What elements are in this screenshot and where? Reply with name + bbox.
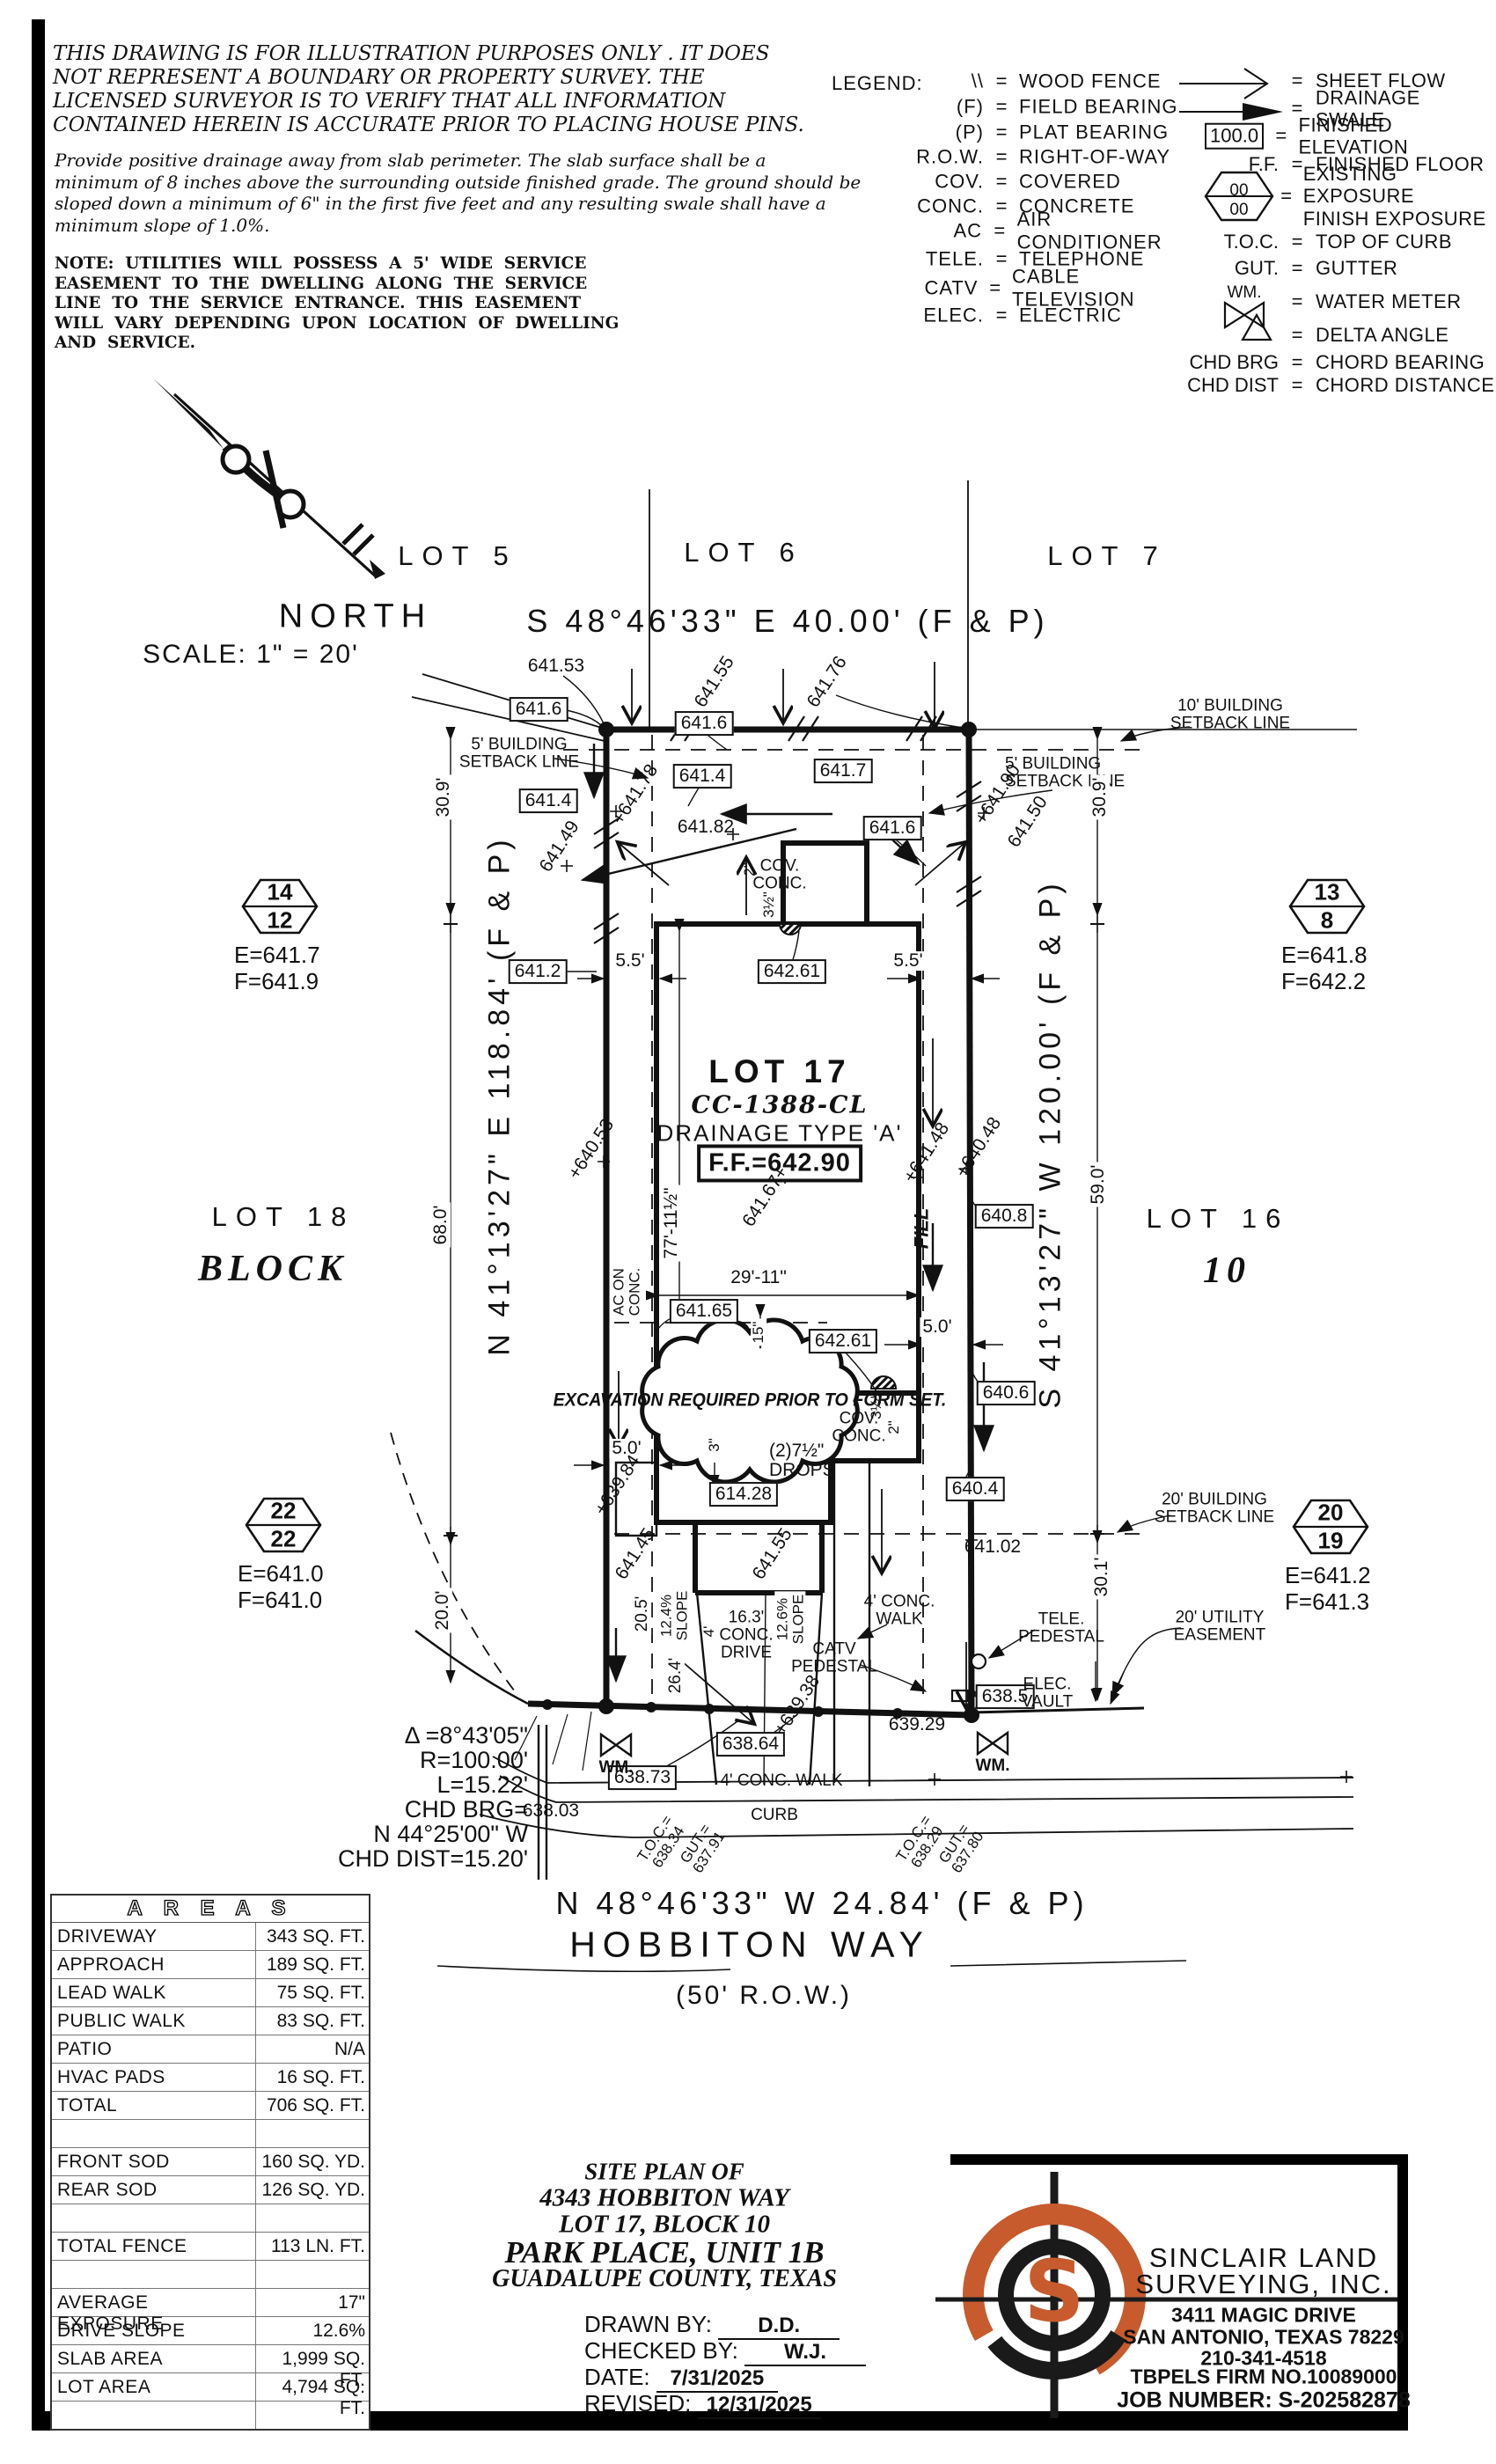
utility-line: WILL VARY DEPENDING UPON LOCATION OF DWE… (55, 313, 619, 334)
curve-data-line: R=100.00' (264, 1748, 528, 1772)
area-value: 126 SQ. YD. (256, 2176, 369, 2204)
legend-symbol: ELEC. (832, 304, 984, 327)
curve-data-line: L=15.22' (264, 1772, 528, 1797)
legend-hex-bottom-value: 00 (1229, 201, 1248, 220)
utility-line: LINE TO THE SERVICE ENTRANCE. THIS EASEM… (55, 293, 619, 313)
company-address-1: 3411 MAGIC DRIVE (1171, 2304, 1356, 2328)
plan-label: T.O.C.= 638.29 (893, 1813, 947, 1873)
area-label: APPROACH (52, 1951, 256, 1978)
legend-description: CHORD BEARING (1316, 351, 1485, 373)
legend-row: GUT. = GUTTER (1175, 257, 1495, 280)
plan-label: 641.82 (678, 818, 734, 837)
drainage-line: sloped down a minimum of 6" in the first… (55, 193, 861, 215)
plan-label: CURB (751, 1807, 798, 1824)
plan-label: 638.64 (716, 1732, 785, 1756)
plan-label: 5' BUILDING SETBACK LINE (459, 736, 579, 771)
legend-equals: = (1279, 374, 1316, 397)
lot6-label: LOT 6 (684, 537, 803, 568)
legend-row: (F) = FIELD BEARING (832, 96, 1201, 119)
titleblock-right-rule (1397, 2154, 1408, 2418)
plan-label: 3½" (761, 891, 777, 918)
north-arrow (153, 378, 385, 579)
finish-elevation: F=641.0 (238, 1587, 322, 1613)
curve-data-line: CHD BRG= (264, 1797, 528, 1822)
plan-label: 30.9' (1090, 775, 1110, 820)
utility-line: NOTE: UTILITIES WILL POSSESS A 5' WIDE S… (55, 253, 619, 274)
lot17-title: LOT 17 (708, 1053, 850, 1090)
areas-table-row: HVAC PADS 16 SQ. FT. (52, 2064, 369, 2092)
areas-table-row: REAR SOD 126 SQ. YD. (52, 2176, 369, 2204)
bearing-north: S 48°46'33" E 40.00' (F & P) (526, 603, 1048, 640)
legend-row: T.O.C. = TOP OF CURB (1175, 231, 1495, 253)
bearing-east: S 41°13'27" W 120.00' (F & P) (1034, 879, 1068, 1408)
area-value: N/A (256, 2035, 369, 2063)
legend-row: = EXISTING EXPOSURE FINISH EXPOSURE (1175, 163, 1495, 230)
curve-data-line: Δ =8°43'05" (264, 1723, 528, 1748)
disclaimer-line: LICENSED SURVEYOR IS TO VERIFY THAT ALL … (53, 90, 804, 114)
elec-vault-symbol (952, 1690, 968, 1701)
area-value: 83 SQ. FT. (256, 2007, 369, 2035)
legend-description: DELTA ANGLE (1316, 324, 1448, 346)
area-label: DRIVE SLOPE (52, 2317, 256, 2344)
plan-label: 20.0' (433, 1588, 452, 1633)
plan-label: 640.8 (975, 1204, 1034, 1228)
field-label: DATE: (584, 2364, 650, 2390)
plan-label: 641.4 (673, 764, 732, 788)
plan-label: +640.53 (565, 1116, 618, 1183)
area-label: FRONT SOD (52, 2148, 256, 2175)
field-value: 7/31/2025 (656, 2366, 778, 2393)
bearing-south: N 48°46'33" W 24.84' (F & P) (555, 1885, 1088, 1922)
area-value: 706 SQ. FT. (256, 2092, 369, 2119)
street-name: HOBBITON WAY (569, 1925, 930, 1966)
disclaimer-line: CONTAINED HEREIN IS ACCURATE PRIOR TO PL… (53, 114, 804, 137)
areas-table-row: TOTAL FENCE 113 LN. FT. (52, 2233, 369, 2261)
areas-table-row: FRONT SOD 160 SQ. YD. (52, 2148, 369, 2176)
job-number: JOB NUMBER: S-202582878 (1117, 2388, 1410, 2414)
area-label: LOT AREA (52, 2373, 256, 2401)
title-line: SITE PLAN OF (584, 2159, 744, 2186)
legend-description: FINISHED ELEVATION (1299, 114, 1496, 159)
plan-label: 5.5' (612, 951, 647, 971)
plan-label: 30.1' (1092, 1555, 1111, 1600)
legend-equals: = (1270, 185, 1303, 208)
area-label: HVAC PADS (52, 2064, 256, 2091)
field-value: W.J. (744, 2340, 866, 2366)
plan-code: CC-1388-CL (691, 1092, 868, 1119)
legend-description: ELECTRIC (1019, 304, 1122, 327)
area-value: 17" (256, 2289, 369, 2316)
plan-label: WM. (975, 1757, 1009, 1775)
legend-description: PLAT BEARING (1019, 121, 1169, 144)
area-label: REAR SOD (52, 2176, 256, 2204)
legend-wm-label: WM. (1227, 283, 1261, 303)
legend-symbol: CATV (832, 276, 978, 299)
legend-description: EXISTING EXPOSURE FINISH EXPOSURE (1303, 163, 1495, 230)
existing-elevation: E=641.8 (1281, 942, 1368, 968)
legend-row: COV. = COVERED (832, 171, 1201, 194)
logo-letter: S (1023, 2242, 1084, 2341)
legend-description: COVERED (1019, 171, 1121, 194)
title-field: REVISED: 12/31/2025 (584, 2390, 821, 2419)
area-value: 160 SQ. YD. (256, 2148, 369, 2175)
utility-line: AND SERVICE. (55, 333, 619, 353)
areas-table-row: LOT AREA 4,794 SQ. FT. (52, 2373, 369, 2402)
plan-label: 641.55 (749, 1525, 796, 1583)
plan-label: 5.5' (891, 951, 925, 971)
site-plan-page: THIS DRAWING IS FOR ILLUSTRATION PURPOSE… (0, 0, 1496, 2464)
title-field: CHECKED BY: W.J. (584, 2337, 866, 2366)
legend-equals: = (978, 276, 1011, 299)
disclaimer-note: THIS DRAWING IS FOR ILLUSTRATION PURPOSE… (53, 42, 804, 137)
plan-label: 614.28 (709, 1482, 778, 1507)
plan-label: +641.48 (900, 1119, 953, 1186)
plan-label: 77'-11½" (662, 1184, 681, 1261)
lot7-label: LOT 7 (1047, 540, 1167, 572)
area-label (52, 2402, 256, 2429)
legend-symbol: R.O.W. (832, 146, 984, 169)
legend-row: 100.0 = FINISHED ELEVATION (1175, 114, 1495, 159)
plan-label: 4' CONC. WALK (864, 1593, 935, 1628)
tele-pedestal-symbol (972, 1654, 986, 1668)
plan-label: AC ON CONC. (611, 1265, 642, 1319)
area-label: AVERAGE EXPOSURE (52, 2289, 256, 2316)
legend-equals: = (1279, 324, 1316, 347)
legend-symbol: 100.0 (1205, 123, 1264, 150)
plan-label: 2" (742, 862, 758, 876)
plan-label: 642.61 (758, 959, 826, 984)
legend-row: AC = AIR CONDITIONER (832, 208, 1201, 253)
areas-table: A R E A S DRIVEWAY 343 SQ. FT. APPROACH … (50, 1894, 370, 2431)
title-line: GUADALUPE COUNTY, TEXAS (492, 2265, 837, 2293)
legend-description: RIGHT-OF-WAY (1019, 146, 1170, 169)
plan-label: 16.3' CONC. DRIVE (719, 1609, 773, 1661)
existing-exposure-value: 22 (271, 1498, 297, 1525)
plan-label: 30.9' (434, 775, 453, 820)
areas-table-header: A R E A S (52, 1896, 369, 1923)
finish-elevation: F=641.9 (234, 968, 319, 994)
plan-label: 641.45 (612, 1525, 658, 1583)
plan-label: 641.49 (536, 818, 583, 876)
area-label: LEAD WALK (52, 1979, 256, 2006)
plan-label: 20' BUILDING SETBACK LINE (1155, 1491, 1274, 1526)
field-value: 12/31/2025 (698, 2393, 821, 2419)
existing-exposure-value: 20 (1318, 1500, 1344, 1527)
legend-row: = DELTA ANGLE (1175, 324, 1495, 347)
finish-elevation: F=642.2 (1281, 968, 1366, 994)
legend-row: R.O.W. = RIGHT-OF-WAY (832, 146, 1201, 169)
legend-description: TOP OF CURB (1316, 231, 1452, 253)
areas-table-rows: DRIVEWAY 343 SQ. FT. APPROACH 189 SQ. FT… (52, 1923, 369, 2429)
legend-symbol: (F) (832, 96, 984, 119)
area-value: 12.6% (256, 2317, 369, 2344)
area-label: PATIO (52, 2035, 256, 2063)
legend-description: WATER METER (1316, 290, 1462, 312)
area-label: DRIVEWAY (52, 1923, 256, 1950)
plan-label: 639.29 (889, 1715, 945, 1734)
plan-label: (2)7½" DROPS (769, 1441, 835, 1480)
curve-data-line: CHD DIST=15.20' (264, 1846, 528, 1871)
north-label: NORTH (279, 598, 432, 636)
plan-label: 640.6 (977, 1381, 1036, 1405)
plan-label: 10' BUILDING SETBACK LINE (1170, 697, 1290, 732)
finish-exposure-value: 22 (271, 1526, 297, 1553)
plan-label: 12.4% SLOPE (658, 1588, 689, 1644)
areas-table-row (52, 2261, 369, 2289)
plan-label: 29'-11" (728, 1268, 789, 1287)
plan-label: WM. (598, 1759, 633, 1777)
drainage-type: DRAINAGE TYPE 'A' (657, 1120, 903, 1148)
areas-table-row: PUBLIC WALK 83 SQ. FT. (52, 2007, 369, 2035)
drainage-line: Provide positive drainage away from slab… (55, 150, 861, 172)
legend-description: CHORD DISTANCE (1316, 374, 1494, 396)
legend-symbol: AC (832, 219, 982, 242)
drainage-line: minimum slope of 1.0%. (55, 215, 861, 237)
dashed-curve (391, 1433, 515, 1691)
plan-label: 641.02 (964, 1537, 1021, 1557)
legend-equals: = (1279, 351, 1316, 374)
areas-table-row: AVERAGE EXPOSURE 17" (52, 2289, 369, 2317)
legend-symbol: \\ (832, 70, 984, 93)
plan-label: TELE. PEDESTAL (1018, 1610, 1104, 1646)
areas-table-row (52, 2120, 369, 2148)
plan-label: +639.38 (771, 1672, 824, 1739)
plan-label: 2" (886, 1420, 902, 1434)
plan-label: 12.6% SLOPE (774, 1592, 805, 1647)
drainage-line: minimum of 8 inches above the surroundin… (55, 172, 861, 194)
legend-row: ELEC. = ELECTRIC (832, 304, 1201, 327)
area-label: SLAB AREA (52, 2345, 256, 2372)
existing-exposure-value: 13 (1315, 879, 1340, 906)
area-label (52, 2204, 256, 2232)
areas-table-row: APPROACH 189 SQ. FT. (52, 1951, 369, 1979)
area-label: TOTAL FENCE (52, 2233, 256, 2260)
area-value: 4,794 SQ. FT. (256, 2373, 369, 2401)
field-label: REVISED: (584, 2390, 691, 2416)
areas-table-row: DRIVEWAY 343 SQ. FT. (52, 1923, 369, 1951)
plan-label: 4' (701, 1626, 717, 1638)
area-label (52, 2261, 256, 2288)
lot18-label: LOT 18 (212, 1201, 356, 1233)
fence-ticks (594, 716, 981, 943)
areas-table-row: DRIVE SLOPE 12.6% (52, 2317, 369, 2345)
street-row: (50' R.O.W.) (676, 1981, 852, 2011)
utility-note: NOTE: UTILITIES WILL POSSESS A 5' WIDE S… (55, 253, 636, 353)
house-outline (656, 843, 919, 1593)
block-number-right: 10 (1203, 1250, 1250, 1292)
legend-description: WOOD FENCE (1019, 70, 1162, 93)
field-label: CHECKED BY: (584, 2337, 738, 2364)
plan-label: 641.2 (509, 959, 568, 984)
boundary-south (528, 1704, 972, 1715)
plan-label: 26.4' (667, 1655, 685, 1697)
plan-label: 641.4 (519, 788, 578, 813)
plan-label: ELEC. VAULT (1022, 1676, 1073, 1711)
area-value: 16 SQ. FT. (256, 2064, 369, 2091)
legend-equals: = (1279, 290, 1316, 313)
legend-symbol: (P) (832, 121, 984, 144)
area-label (52, 2120, 256, 2147)
existing-elevation: E=641.7 (234, 942, 320, 968)
scale-label: SCALE: 1" = 20' (143, 640, 359, 670)
areas-table-row: TOTAL 706 SQ. FT. (52, 2092, 369, 2120)
plan-label: +640.48 (952, 1114, 1005, 1181)
plan-label: 5.0' (920, 1317, 954, 1337)
finish-elevation: F=641.3 (1285, 1588, 1369, 1615)
plan-label: 68.0' (431, 1203, 451, 1248)
utility-line: EASEMENT TO THE DWELLING ALONG THE SERVI… (55, 274, 619, 294)
plan-label: 641.55 (691, 653, 737, 711)
plan-label: FILL (913, 1208, 933, 1249)
plan-label: 640.4 (946, 1477, 1005, 1501)
plan-label: +641.78 (609, 761, 662, 828)
plan-label: 4' CONC. WALK (720, 1772, 842, 1790)
area-value: 1,999 SQ. FT. (256, 2345, 369, 2372)
existing-exposure-value: 14 (268, 879, 293, 906)
legend-symbol: GUT. (1175, 257, 1279, 280)
area-value: 75 SQ. FT. (256, 1979, 369, 2006)
company-address-2: SAN ANTONIO, TEXAS 78229 (1123, 2326, 1404, 2350)
legend-row: \\ = WOOD FENCE (832, 70, 1201, 93)
areas-table-row: SLAB AREA 1,999 SQ. FT. (52, 2345, 369, 2373)
plan-label: 641.6 (863, 816, 922, 840)
legend-row: CHD DIST = CHORD DISTANCE (1175, 374, 1495, 397)
block-label-left: BLOCK (198, 1248, 348, 1290)
legend-symbol: T.O.C. (1175, 231, 1279, 253)
plan-label: 641.7 (814, 759, 873, 783)
areas-table-row: LEAD WALK 75 SQ. FT. (52, 1979, 369, 2007)
legend-equals: = (1279, 231, 1316, 253)
row-curve (415, 1631, 528, 1704)
field-label: DRAWN BY: (584, 2311, 712, 2337)
legend-equals: = (1264, 125, 1298, 148)
page-border-left (32, 19, 45, 2431)
adjacent-lot-lines (412, 674, 605, 741)
area-label: PUBLIC WALK (52, 2007, 256, 2035)
plan-label: 638.03 (523, 1801, 579, 1821)
bearing-west: N 41°13'27" E 118.84' (F & P) (483, 835, 517, 1355)
areas-table-row: PATIO N/A (52, 2035, 369, 2064)
area-value: 189 SQ. FT. (256, 1951, 369, 1978)
plan-label: 59.0' (1089, 1162, 1108, 1207)
finish-exposure-value: 19 (1318, 1528, 1344, 1555)
plan-label: COV. CONC. (752, 857, 806, 892)
legend-equals: = (1279, 257, 1316, 280)
title-line: 4343 HOBBITON WAY (539, 2184, 789, 2213)
area-value: 343 SQ. FT. (256, 1923, 369, 1950)
titleblock-top-rule (950, 2154, 1408, 2165)
plan-label: 642.61 (809, 1329, 877, 1353)
legend-symbol: COV. (832, 171, 984, 194)
legend-description: GUTTER (1316, 257, 1397, 279)
title-field: DATE: 7/31/2025 (584, 2364, 778, 2393)
legend-row: = WATER METER (1175, 290, 1495, 313)
plan-label: 15" (751, 1319, 766, 1346)
lot5-label: LOT 5 (398, 540, 517, 572)
plan-label: 20.5' (634, 1594, 651, 1635)
plan-label: 20' UTILITY EASEMENT (1174, 1609, 1266, 1644)
area-label: TOTAL (52, 2092, 256, 2119)
finish-exposure-value: 8 (1321, 907, 1333, 935)
legend-symbol: CHD DIST (1175, 374, 1279, 397)
plan-label: +641.90 (972, 761, 1024, 828)
boundary-east (969, 730, 972, 1715)
curve-data-line: N 44°25'00" W (264, 1822, 528, 1846)
plan-label: 641.65 (670, 1299, 738, 1324)
plan-label: 641.76 (803, 653, 850, 711)
plan-label: 3" (707, 1435, 722, 1455)
disclaimer-line: NOT REPRESENT A BOUNDARY OR PROPERTY SUR… (53, 66, 804, 90)
legend-equals: = (984, 146, 1019, 169)
existing-elevation: E=641.2 (1285, 1562, 1371, 1588)
excavation-note: EXCAVATION REQUIRED PRIOR TO FORM SET. (554, 1390, 947, 1412)
legend-equals: = (984, 304, 1019, 327)
area-value (256, 2120, 369, 2147)
plan-label: 3½" (869, 1393, 884, 1419)
water-meter-symbols (601, 1733, 1008, 1756)
area-value (256, 2204, 369, 2232)
plan-label: T.O.C.= 638.34 (634, 1813, 688, 1873)
plan-label: +639.84 (591, 1452, 644, 1519)
field-value: D.D. (718, 2314, 840, 2340)
legend-hex-top-value: 00 (1229, 181, 1248, 201)
drainage-note: Provide positive drainage away from slab… (55, 150, 861, 236)
legend-row: (P) = PLAT BEARING (832, 121, 1201, 144)
area-value (256, 2261, 369, 2288)
disclaimer-line: THIS DRAWING IS FOR ILLUSTRATION PURPOSE… (53, 42, 804, 66)
legend-equals: = (984, 96, 1019, 119)
area-value: 113 LN. FT. (256, 2233, 369, 2260)
company-firm-number: TBPELS FIRM NO.10089000 (1131, 2365, 1397, 2389)
title-field: DRAWN BY: D.D. (584, 2311, 840, 2340)
areas-table-row (52, 2402, 369, 2429)
plan-label: 641.6 (675, 711, 734, 736)
legend-equals: = (984, 171, 1019, 194)
legend-equals: = (982, 219, 1017, 242)
plan-label: 641.6 (510, 697, 568, 722)
lot16-label: LOT 16 (1147, 1203, 1290, 1235)
areas-table-row (52, 2204, 369, 2233)
company-name-2: SURVEYING, INC. (1135, 2269, 1391, 2300)
legend-row: CHD BRG = CHORD BEARING (1175, 351, 1495, 374)
legend-equals: = (984, 70, 1019, 93)
area-value (256, 2402, 369, 2429)
legend-equals: = (984, 121, 1019, 144)
plan-label: 641.50 (1004, 793, 1051, 851)
legend-symbol: CHD BRG (1175, 351, 1279, 374)
finish-exposure-value: 12 (268, 907, 293, 935)
legend-description: AIR CONDITIONER (1017, 208, 1201, 253)
plan-label: 641.53 (528, 656, 584, 676)
existing-elevation: E=641.0 (238, 1560, 324, 1587)
legend-description: FIELD BEARING (1019, 96, 1177, 119)
